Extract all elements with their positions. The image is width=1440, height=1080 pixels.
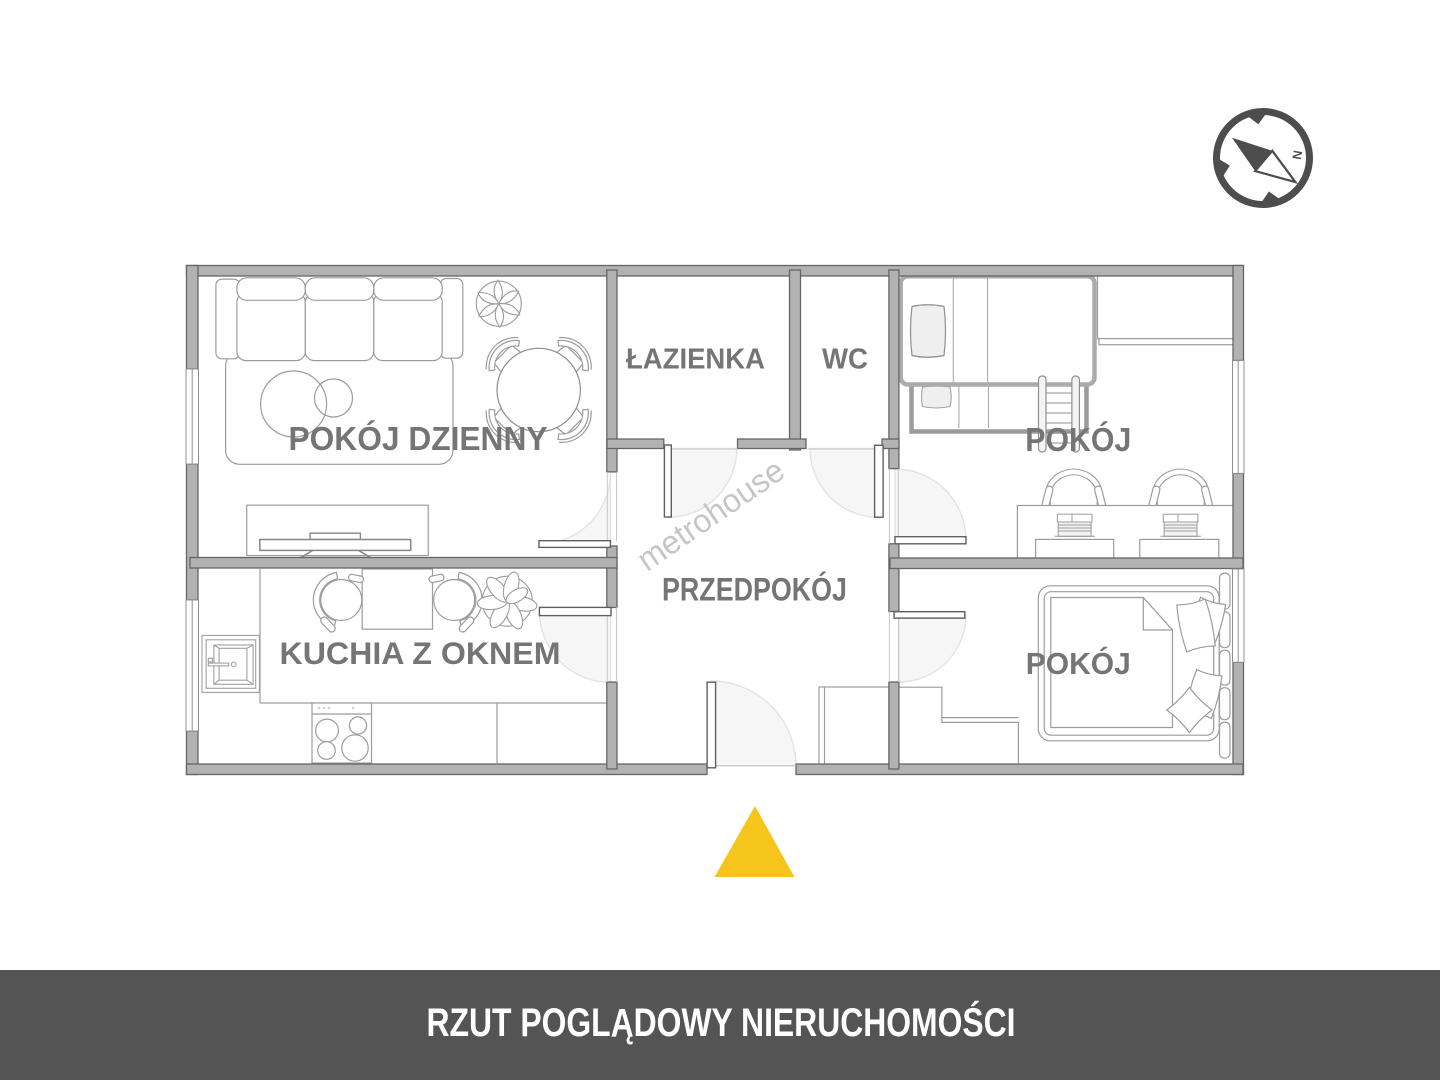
svg-text:PRZEDPOKÓJ: PRZEDPOKÓJ <box>662 571 847 608</box>
svg-text:POKÓJ: POKÓJ <box>1026 645 1131 681</box>
svg-text:POKÓJ DZIENNY: POKÓJ DZIENNY <box>289 420 548 458</box>
svg-text:RZUT POGLĄDOWY NIERUCHOMOŚCI: RZUT POGLĄDOWY NIERUCHOMOŚCI <box>427 999 1016 1045</box>
svg-text:POKÓJ: POKÓJ <box>1025 421 1131 458</box>
svg-text:ŁAZIENKA: ŁAZIENKA <box>626 344 765 376</box>
svg-text:KUCHIA Z OKNEM: KUCHIA Z OKNEM <box>280 635 561 671</box>
svg-text:WC: WC <box>822 344 868 376</box>
